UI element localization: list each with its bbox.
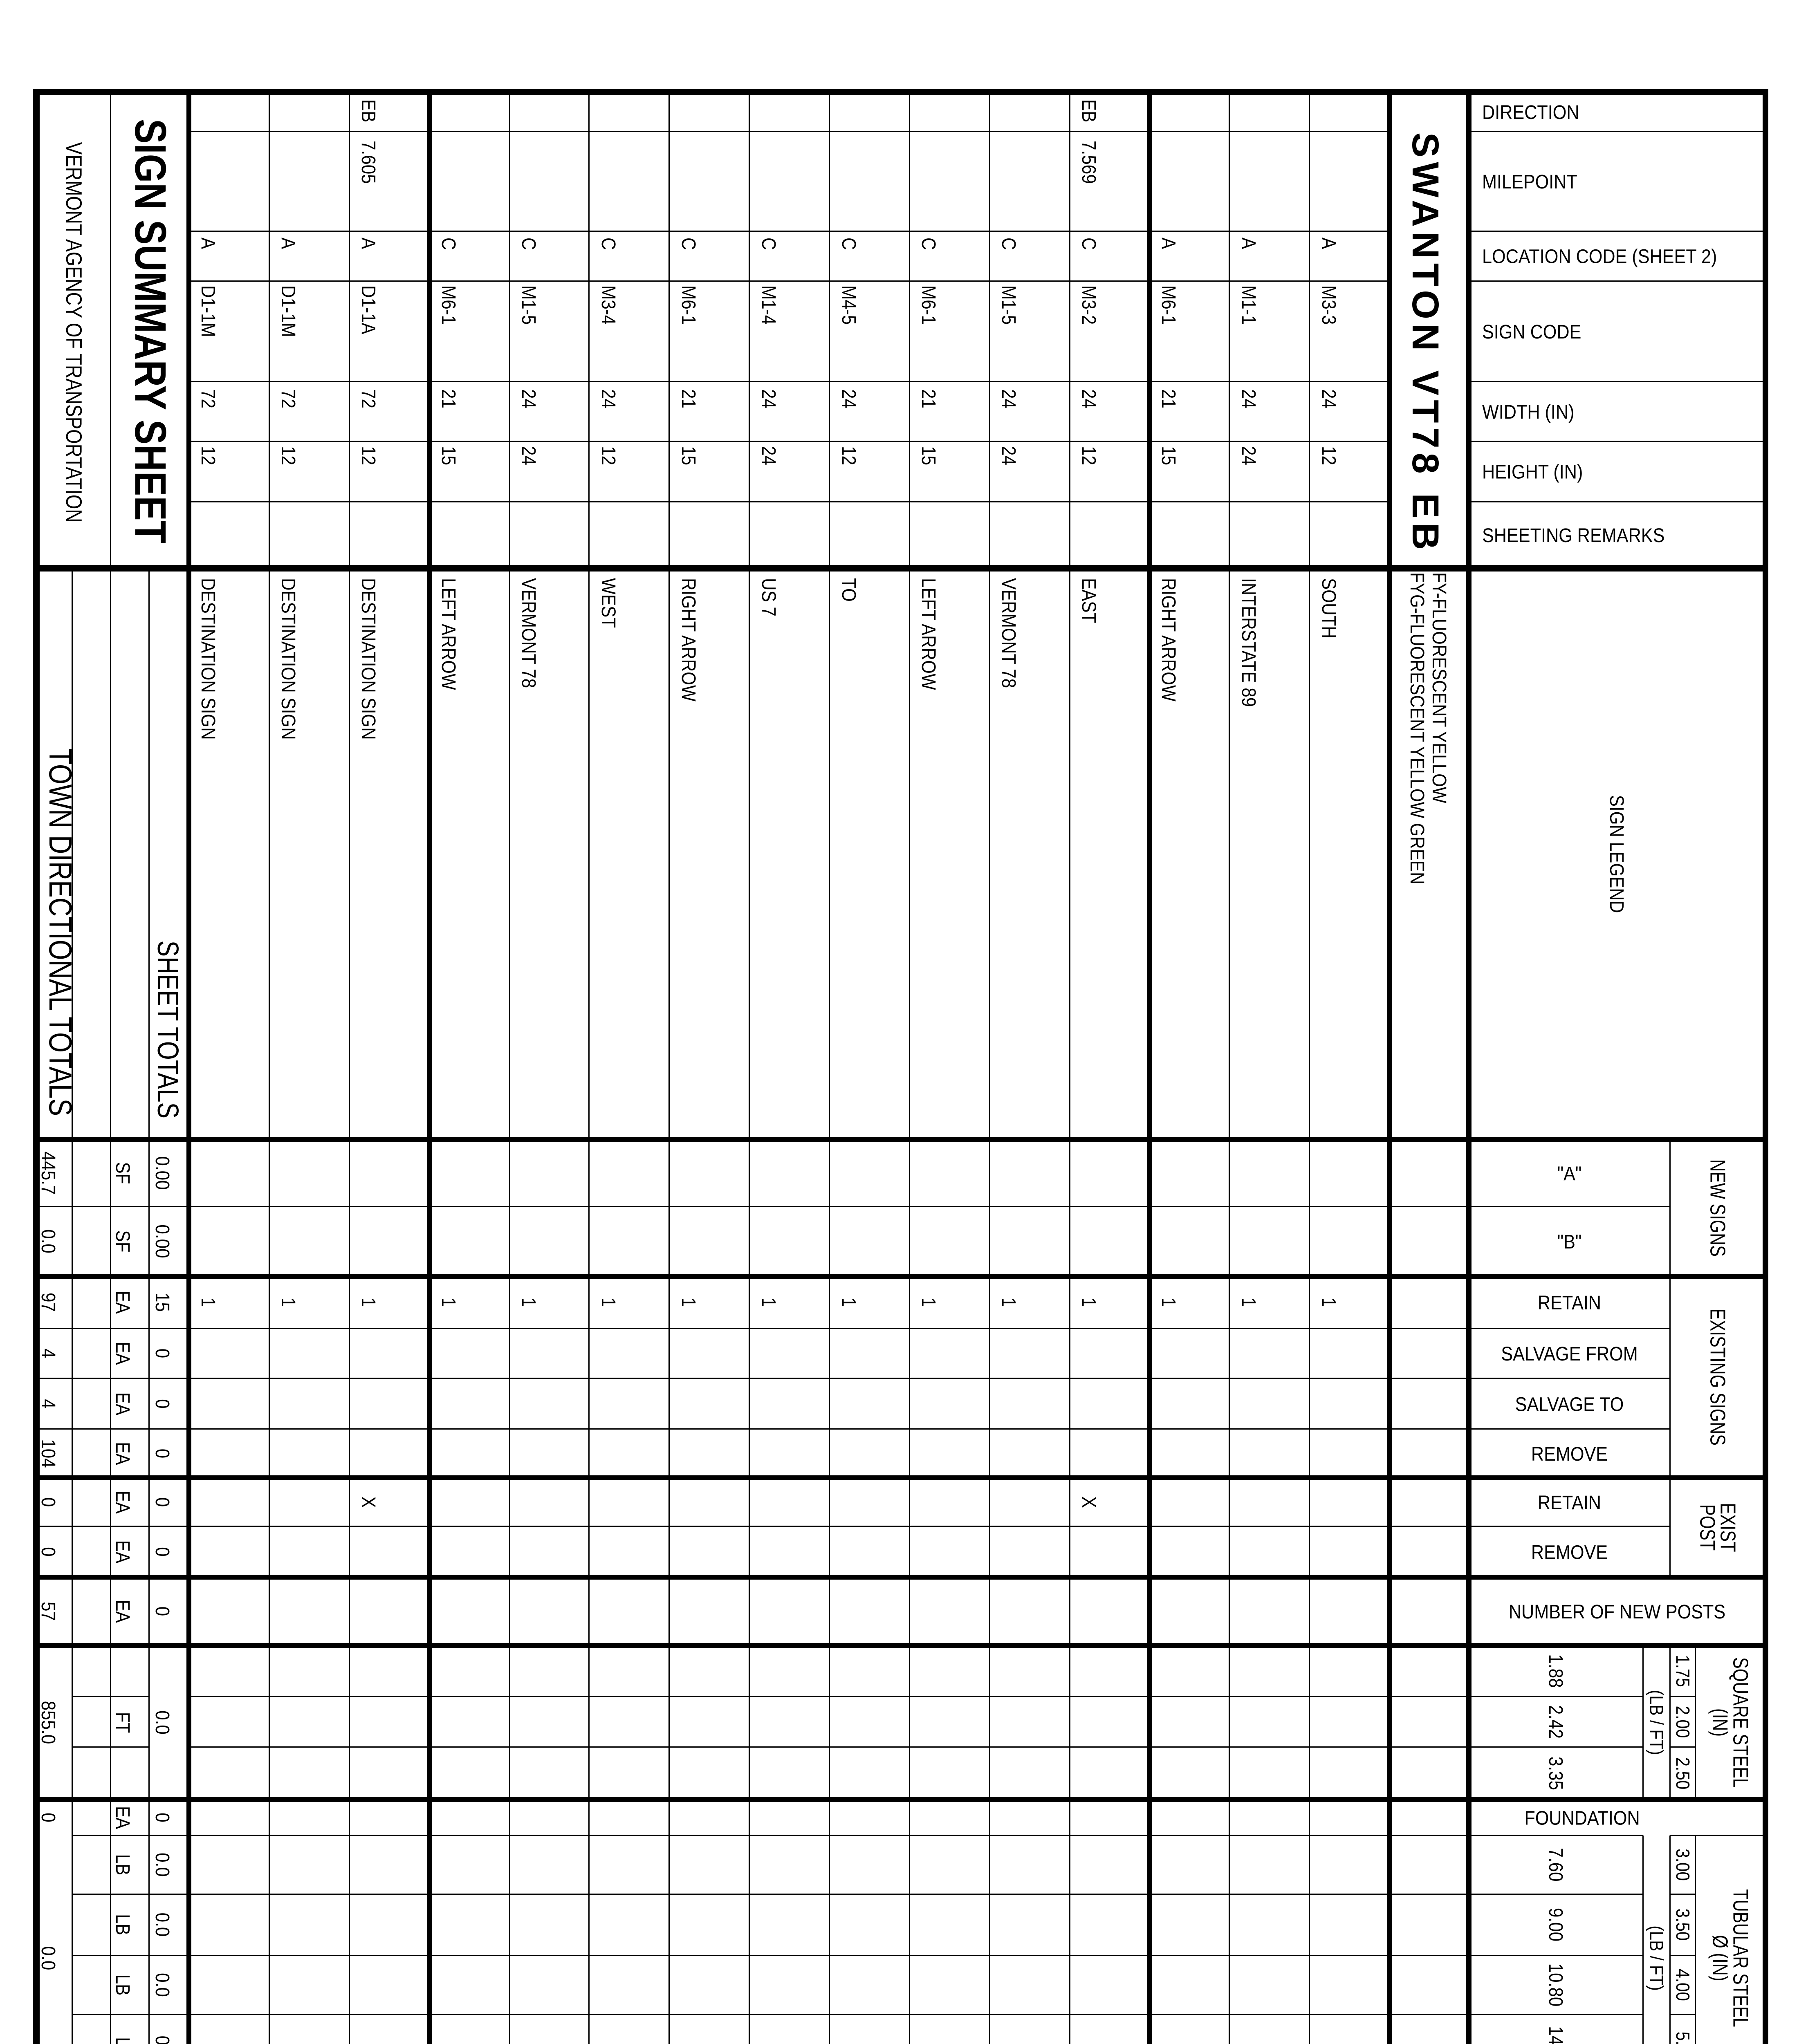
svg-text:4: 4 <box>37 1399 59 1408</box>
svg-text:SIGN SUMMARY SHEET: SIGN SUMMARY SHEET <box>126 119 175 543</box>
svg-text:15: 15 <box>917 446 940 465</box>
svg-text:0.0: 0.0 <box>151 1973 173 1997</box>
svg-text:7.60: 7.60 <box>1545 1848 1567 1881</box>
svg-text:LB: LB <box>112 1914 134 1935</box>
svg-text:LB: LB <box>112 1975 134 1996</box>
svg-text:WEST: WEST <box>597 578 619 628</box>
svg-text:1: 1 <box>437 1298 460 1307</box>
svg-text:10.80: 10.80 <box>1545 1963 1567 2007</box>
svg-text:21: 21 <box>437 389 460 408</box>
svg-text:12: 12 <box>277 446 299 465</box>
svg-text:855.0: 855.0 <box>37 1701 59 1744</box>
svg-text:REMOVE: REMOVE <box>1531 1443 1608 1465</box>
svg-text:2.00: 2.00 <box>1672 1706 1693 1738</box>
svg-text:24: 24 <box>518 446 540 465</box>
svg-text:EA: EA <box>112 1600 134 1623</box>
svg-text:1.88: 1.88 <box>1545 1654 1567 1688</box>
svg-text:X: X <box>357 1496 379 1508</box>
svg-text:C: C <box>917 238 940 250</box>
svg-text:4.00: 4.00 <box>1672 1969 1693 2001</box>
svg-text:24: 24 <box>597 389 619 408</box>
svg-text:15: 15 <box>677 446 700 465</box>
svg-text:VERMONT 78: VERMONT 78 <box>518 578 540 688</box>
svg-text:EA: EA <box>112 1540 134 1564</box>
svg-text:Ø (IN): Ø (IN) <box>1708 1935 1732 1981</box>
svg-text:X: X <box>1078 1496 1100 1508</box>
svg-text:LOCATION CODE (SHEET 2): LOCATION CODE (SHEET 2) <box>1482 245 1717 267</box>
svg-text:A: A <box>1157 238 1180 249</box>
svg-text:1: 1 <box>518 1298 540 1307</box>
svg-text:1: 1 <box>1318 1298 1340 1307</box>
svg-text:RETAIN: RETAIN <box>1538 1292 1601 1314</box>
svg-text:POST: POST <box>1696 1504 1720 1551</box>
svg-text:M3-3: M3-3 <box>1318 285 1340 325</box>
svg-text:SALVAGE FROM: SALVAGE FROM <box>1501 1343 1637 1365</box>
svg-text:0: 0 <box>151 1547 173 1556</box>
svg-text:1: 1 <box>677 1298 700 1307</box>
svg-text:C: C <box>518 238 540 250</box>
svg-text:C: C <box>998 238 1020 250</box>
svg-text:C: C <box>758 238 780 250</box>
svg-text:0: 0 <box>151 1399 173 1408</box>
svg-text:A: A <box>197 238 219 249</box>
svg-text:7.569: 7.569 <box>1078 141 1100 184</box>
svg-text:NUMBER OF NEW POSTS: NUMBER OF NEW POSTS <box>1509 1601 1725 1623</box>
svg-text:US 7: US 7 <box>758 578 780 616</box>
svg-text:(LB / FT): (LB / FT) <box>1646 1690 1667 1755</box>
svg-text:1: 1 <box>597 1298 619 1307</box>
svg-text:24: 24 <box>1238 389 1260 408</box>
svg-text:RIGHT ARROW: RIGHT ARROW <box>1157 578 1180 702</box>
svg-text:24: 24 <box>1078 389 1100 408</box>
svg-text:EA: EA <box>112 1291 134 1314</box>
svg-text:FOUNDATION: FOUNDATION <box>1524 1807 1640 1829</box>
svg-text:C: C <box>677 238 700 250</box>
svg-text:RETAIN: RETAIN <box>1538 1492 1601 1514</box>
svg-text:(LB / FT): (LB / FT) <box>1646 1925 1667 1991</box>
svg-text:EA: EA <box>112 1442 134 1465</box>
svg-text:FY-FLUORESCENT YELLOW: FY-FLUORESCENT YELLOW <box>1428 572 1450 803</box>
svg-text:5.00: 5.00 <box>1672 2032 1693 2044</box>
svg-text:"A": "A" <box>1557 1163 1581 1185</box>
svg-text:21: 21 <box>917 389 940 408</box>
svg-text:SOUTH: SOUTH <box>1318 578 1340 639</box>
svg-text:0.00: 0.00 <box>151 1224 173 1258</box>
svg-text:C: C <box>838 238 860 250</box>
svg-text:72: 72 <box>197 389 219 408</box>
svg-text:VERMONT AGENCY OF TRANSPORTATI: VERMONT AGENCY OF TRANSPORTATION <box>61 142 87 523</box>
svg-text:21: 21 <box>677 389 700 408</box>
svg-text:0: 0 <box>37 1497 59 1507</box>
svg-text:12: 12 <box>1318 446 1340 465</box>
svg-text:97: 97 <box>37 1293 59 1312</box>
svg-text:SIGN LEGEND: SIGN LEGEND <box>1606 795 1628 913</box>
svg-text:1: 1 <box>277 1298 299 1307</box>
svg-text:EA: EA <box>112 1392 134 1416</box>
svg-text:EA: EA <box>112 1490 134 1514</box>
svg-text:M1-1: M1-1 <box>1238 285 1260 325</box>
svg-text:(IN): (IN) <box>1708 1708 1732 1737</box>
svg-text:0: 0 <box>151 1349 173 1358</box>
svg-text:24: 24 <box>1238 446 1260 465</box>
svg-text:15: 15 <box>437 446 460 465</box>
svg-text:EA: EA <box>112 1806 134 1829</box>
svg-text:DESTINATION SIGN: DESTINATION SIGN <box>197 578 219 740</box>
svg-text:12: 12 <box>1078 446 1100 465</box>
svg-text:12: 12 <box>197 446 219 465</box>
svg-text:M3-2: M3-2 <box>1078 285 1100 325</box>
svg-text:12: 12 <box>838 446 860 465</box>
svg-text:1: 1 <box>197 1298 219 1307</box>
svg-text:0.0: 0.0 <box>151 1853 173 1877</box>
svg-text:A: A <box>1318 238 1340 249</box>
svg-text:M1-4: M1-4 <box>758 285 780 325</box>
svg-text:M6-1: M6-1 <box>1157 285 1180 325</box>
svg-text:57: 57 <box>37 1602 59 1621</box>
svg-text:D1-1M: D1-1M <box>197 285 219 337</box>
svg-text:SF: SF <box>112 1230 134 1253</box>
svg-text:EB: EB <box>357 99 379 122</box>
svg-text:VERMONT 78: VERMONT 78 <box>998 578 1020 688</box>
svg-text:NEW SIGNS: NEW SIGNS <box>1706 1159 1730 1257</box>
svg-text:2.50: 2.50 <box>1672 1757 1693 1790</box>
svg-text:1: 1 <box>357 1298 379 1307</box>
svg-text:0.0: 0.0 <box>151 1913 173 1937</box>
svg-text:0: 0 <box>151 1813 173 1822</box>
svg-text:D1-1A: D1-1A <box>357 285 379 334</box>
svg-text:24: 24 <box>758 446 780 465</box>
svg-text:4: 4 <box>37 1349 59 1358</box>
svg-text:RIGHT ARROW: RIGHT ARROW <box>677 578 700 702</box>
svg-text:A: A <box>1238 238 1260 249</box>
svg-text:104: 104 <box>37 1439 59 1468</box>
svg-text:D1-1M: D1-1M <box>277 285 299 337</box>
svg-text:SF: SF <box>112 1162 134 1184</box>
svg-text:REMOVE: REMOVE <box>1531 1541 1608 1563</box>
svg-text:M3-4: M3-4 <box>597 285 619 325</box>
svg-text:DIRECTION: DIRECTION <box>1482 101 1579 123</box>
svg-text:HEIGHT (IN): HEIGHT (IN) <box>1482 461 1583 483</box>
svg-text:3.00: 3.00 <box>1672 1849 1693 1881</box>
svg-text:0: 0 <box>151 1497 173 1507</box>
svg-text:1: 1 <box>917 1298 940 1307</box>
svg-text:TOWN DIRECTIONAL TOTALS: TOWN DIRECTIONAL TOTALS <box>43 749 78 1116</box>
svg-text:0.00: 0.00 <box>151 1156 173 1190</box>
svg-text:FYG-FLUORESCENT YELLOW GREEN: FYG-FLUORESCENT YELLOW GREEN <box>1406 572 1428 884</box>
svg-text:"B": "B" <box>1557 1231 1581 1253</box>
svg-text:A: A <box>357 238 379 249</box>
svg-text:3.50: 3.50 <box>1672 1909 1693 1941</box>
svg-text:0.0: 0.0 <box>151 1710 173 1735</box>
svg-text:DESTINATION SIGN: DESTINATION SIGN <box>277 578 299 740</box>
svg-text:24: 24 <box>758 389 780 408</box>
svg-text:0.0: 0.0 <box>37 1229 59 1253</box>
svg-text:0: 0 <box>151 1449 173 1458</box>
svg-text:15: 15 <box>1157 446 1180 465</box>
svg-text:0: 0 <box>151 1607 173 1616</box>
svg-text:FT: FT <box>112 1712 134 1733</box>
svg-text:M6-1: M6-1 <box>917 285 940 325</box>
svg-text:EB: EB <box>1078 99 1100 122</box>
svg-text:24: 24 <box>998 446 1020 465</box>
svg-text:15: 15 <box>151 1293 173 1312</box>
svg-text:EA: EA <box>112 1342 134 1365</box>
svg-text:SHEET TOTALS: SHEET TOTALS <box>152 941 185 1118</box>
svg-text:C: C <box>1078 238 1100 250</box>
svg-text:0.0: 0.0 <box>151 2036 173 2044</box>
svg-text:1.75: 1.75 <box>1672 1655 1693 1687</box>
svg-text:445.7: 445.7 <box>37 1152 59 1195</box>
svg-text:0: 0 <box>37 1547 59 1556</box>
svg-text:LEFT ARROW: LEFT ARROW <box>917 578 940 690</box>
svg-text:24: 24 <box>518 389 540 408</box>
svg-text:MILEPOINT: MILEPOINT <box>1482 171 1577 193</box>
svg-text:0: 0 <box>37 1813 59 1822</box>
svg-text:72: 72 <box>277 389 299 408</box>
svg-text:M4-5: M4-5 <box>838 285 860 325</box>
svg-text:SIGN CODE: SIGN CODE <box>1482 321 1581 343</box>
svg-text:12: 12 <box>597 446 619 465</box>
svg-text:M6-1: M6-1 <box>677 285 700 325</box>
svg-text:9.00: 9.00 <box>1545 1908 1567 1941</box>
svg-text:WIDTH (IN): WIDTH (IN) <box>1482 401 1575 423</box>
svg-text:M1-5: M1-5 <box>998 285 1020 325</box>
svg-text:M6-1: M6-1 <box>437 285 460 325</box>
svg-text:1: 1 <box>1157 1298 1180 1307</box>
svg-text:EAST: EAST <box>1078 578 1100 623</box>
svg-text:LB: LB <box>112 2037 134 2044</box>
svg-text:14.60: 14.60 <box>1545 2026 1567 2044</box>
svg-text:7.605: 7.605 <box>357 141 379 184</box>
svg-text:24: 24 <box>998 389 1020 408</box>
svg-text:LB: LB <box>112 1854 134 1876</box>
svg-text:1: 1 <box>998 1298 1020 1307</box>
svg-text:EXISTING SIGNS: EXISTING SIGNS <box>1706 1309 1730 1446</box>
svg-text:0.0: 0.0 <box>37 1946 59 1970</box>
svg-text:24: 24 <box>1318 389 1340 408</box>
svg-text:C: C <box>437 238 460 250</box>
svg-text:SHEETING REMARKS: SHEETING REMARKS <box>1482 524 1664 547</box>
svg-text:3.35: 3.35 <box>1545 1757 1567 1790</box>
svg-text:LEFT ARROW: LEFT ARROW <box>437 578 460 690</box>
svg-text:A: A <box>277 238 299 249</box>
svg-text:12: 12 <box>357 446 379 465</box>
svg-text:2.42: 2.42 <box>1545 1705 1567 1739</box>
svg-text:1: 1 <box>1078 1298 1100 1307</box>
svg-text:TO: TO <box>838 578 860 602</box>
svg-text:SWANTON VT78 EB: SWANTON VT78 EB <box>1404 132 1446 554</box>
svg-text:72: 72 <box>357 389 379 408</box>
svg-text:C: C <box>597 238 619 250</box>
svg-text:DESTINATION SIGN: DESTINATION SIGN <box>357 578 379 740</box>
svg-text:M1-5: M1-5 <box>518 285 540 325</box>
svg-text:SALVAGE TO: SALVAGE TO <box>1515 1393 1624 1415</box>
svg-text:INTERSTATE 89: INTERSTATE 89 <box>1238 578 1260 707</box>
svg-text:1: 1 <box>758 1298 780 1307</box>
svg-text:1: 1 <box>838 1298 860 1307</box>
svg-text:21: 21 <box>1157 389 1180 408</box>
svg-text:1: 1 <box>1238 1298 1260 1307</box>
svg-text:24: 24 <box>838 389 860 408</box>
